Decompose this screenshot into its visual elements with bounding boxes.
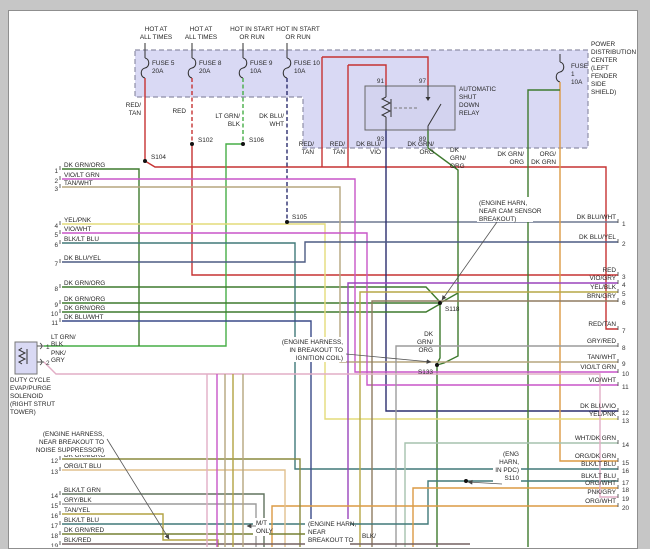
wire-orgltblu-l13 [62, 470, 285, 547]
wire-color-label: BLK [228, 121, 241, 128]
solenoid-pin-label: BLK [51, 341, 64, 348]
wire-color-label: ORG [418, 347, 433, 354]
evap-solenoid-box [15, 342, 37, 374]
left-pin-label: DK BLU/YEL [64, 255, 101, 262]
left-pin-number: 7 [54, 261, 58, 268]
solenoid-pin-label: GRY [51, 357, 65, 364]
right-pin-label: RED [603, 267, 617, 274]
wire-color-label: GRN/ [450, 155, 466, 162]
wire-color-label: TAN [333, 149, 346, 156]
annotation-ignition-coil-breakout: (ENGINE HARNESS, [282, 339, 343, 346]
left-pin-number: 17 [51, 523, 59, 530]
solenoid-caption: EVAP/PURGE [10, 385, 51, 392]
pdc-title: FENDER [591, 73, 618, 80]
wire-brngry-r6 [372, 301, 618, 547]
annotation-s110-in-pdc: (ENG [503, 451, 519, 458]
hot-feed-label: HOT AT [190, 26, 213, 33]
splice-dot-S105 [285, 220, 289, 224]
relay-pin-number: 97 [419, 78, 427, 85]
left-pin-number: 1 [54, 168, 58, 175]
hot-feed-label: OR RUN [239, 34, 265, 41]
right-pin-label: YEL/PNK [589, 411, 617, 418]
hot-feed-label: HOT IN START [276, 26, 320, 33]
solenoid-pin-number: 2 [46, 360, 50, 367]
annotation-bottom-breakout: BREAKOUT TO [308, 537, 353, 544]
relay-pin-number: 91 [377, 78, 385, 85]
right-pin-label: VIO/LT GRN [580, 364, 616, 371]
left-pin-label: BLK/LT BLU [64, 517, 99, 524]
splice-dot-S106 [241, 142, 245, 146]
right-pin-label: TAN/WHT [587, 354, 616, 361]
fuse1-label: FUSE [571, 63, 588, 70]
right-pin-number: 10 [622, 371, 630, 378]
annotation-s110-in-pdc: HARN, [499, 459, 519, 466]
hot-feed-label: OR RUN [285, 34, 311, 41]
left-pin-label: DK GRN/ORG [64, 280, 105, 287]
fuse-label: FUSE 8 [199, 60, 222, 67]
fuse-label: FUSE 9 [250, 60, 273, 67]
hot-feed-label: ALL TIMES [140, 34, 172, 41]
left-pin-number: 12 [51, 458, 59, 465]
left-pin-label: TAN/WHT [64, 180, 93, 187]
left-pin-number: 4 [54, 223, 58, 230]
annotation-s110-in-pdc: S110 [505, 475, 520, 482]
left-pin-number: 16 [51, 513, 59, 520]
wire-color-label: RED/ [330, 141, 345, 148]
wire-color-label: DK BLU/ [259, 113, 284, 120]
right-pin-number: 18 [622, 487, 630, 494]
left-pin-label: DK BLU/WHT [64, 314, 104, 321]
fuse-label: 20A [152, 68, 164, 75]
right-pin-label: DK BLU/WHT [577, 214, 617, 221]
fuse1-label: 1 [571, 71, 575, 78]
annotation-cam-sensor-breakout: (ENGINE HARN, [479, 200, 528, 207]
wire-color-label: DK [450, 147, 460, 154]
left-pin-number: 8 [54, 286, 58, 293]
right-pin-number: 17 [622, 480, 630, 487]
pdc-title: (LEFT [591, 65, 609, 72]
fuse-label: 10A [250, 68, 262, 75]
left-pin-number: 14 [51, 493, 59, 500]
annotation-mt-only: M/T [256, 520, 267, 527]
right-pin-number: 16 [622, 468, 630, 475]
left-pin-number: 18 [51, 533, 59, 540]
left-pin-label: GRY/BLK [64, 497, 92, 504]
solenoid-caption: TOWER) [10, 409, 36, 416]
wire-color-label: ORG [450, 163, 465, 170]
right-pin-label: BLK/LT BLU [581, 473, 616, 480]
wire-color-label: ORG [419, 149, 434, 156]
splice-label: S118 [445, 306, 460, 313]
wire-gryred-r8 [396, 346, 618, 547]
splice-dot-S133 [435, 363, 439, 367]
right-pin-label: BLK/LT BLU [581, 461, 616, 468]
right-pin-label: ORG/WHT [585, 498, 616, 505]
wire-color-label: ORG/ [540, 151, 557, 158]
annotation-cam-sensor-breakout: NEAR CAM SENSOR [479, 208, 542, 215]
right-pin-number: 1 [622, 221, 626, 228]
fuse1-label: 10A [571, 79, 583, 86]
right-pin-number: 7 [622, 328, 626, 335]
solenoid-pin-label: PNK/ [51, 350, 66, 357]
right-pin-label: DK BLU/YEL [579, 234, 616, 241]
left-pin-label: YEL/PNK [64, 217, 92, 224]
left-pin-label: DK GRN/ORG [64, 296, 105, 303]
right-pin-number: 8 [622, 345, 626, 352]
left-pin-number: 15 [51, 503, 59, 510]
right-pin-label: PNK/GRY [587, 489, 616, 496]
right-pin-number: 2 [622, 241, 626, 248]
wire-color-label: TAN [302, 149, 315, 156]
wire-color-label: LT GRN/ [215, 113, 240, 120]
fuse-label: 10A [294, 68, 306, 75]
solenoid-caption: DUTY CYCLE [10, 377, 50, 384]
pdc-title: POWER [591, 41, 616, 48]
left-pin-number: 19 [51, 543, 59, 547]
wire-color-label: TAN [129, 110, 142, 117]
splice-label: S104 [151, 154, 166, 161]
left-pin-label: VIO/LT GRN [64, 172, 100, 179]
left-pin-label: DK GRN/ORG [64, 162, 105, 169]
left-pin-number: 2 [54, 178, 58, 185]
annotation-mt-only: ONLY [256, 528, 274, 535]
left-pin-label: TAN/YEL [64, 507, 91, 514]
fuse-label: FUSE 10 [294, 60, 320, 67]
asd-relay-label: RELAY [459, 110, 480, 117]
right-pin-label: ORG/DK GRN [575, 453, 617, 460]
wire-color-label: DK GRN/ [407, 141, 434, 148]
solenoid-caption: (RIGHT STRUT [10, 401, 55, 408]
right-pin-number: 13 [622, 418, 630, 425]
right-pin-label: YEL/BLK [590, 284, 617, 291]
splice-dot-S110 [464, 479, 468, 483]
left-pin-number: 13 [51, 469, 59, 476]
left-pin-number: 3 [54, 186, 58, 193]
wire-orgwht-r18 [413, 488, 618, 547]
solenoid-pin-label: LT GRN/ [51, 334, 76, 341]
right-pin-number: 12 [622, 410, 630, 417]
left-pin-number: 11 [51, 320, 58, 327]
wire-color-label: BLK/ [362, 533, 376, 540]
annotation-bottom-breakout: NEAR [308, 529, 326, 536]
right-pin-label: VIO/WHT [589, 377, 616, 384]
annotation-noise-suppressor-breakout: (ENGINE HARNESS, [43, 431, 104, 438]
wire-color-label: DK GRN/ [497, 151, 524, 158]
annotation-bottom-breakout: (ENGINE HARN, [308, 521, 357, 528]
asd-relay-label: SHUT [459, 94, 476, 101]
right-pin-label: VIO/GRY [589, 275, 616, 282]
left-pin-label: DK GRN/RED [64, 527, 105, 534]
right-pin-label: DK BLU/VIO [580, 403, 616, 410]
wire-dkgrnorg-l8 [62, 287, 440, 302]
annotation-noise-suppressor-breakout: NOISE SUPPRESSOR) [36, 447, 104, 454]
left-pin-label: BLK/LT BLU [64, 236, 99, 243]
annotation-cam-sensor-breakout: BREAKOUT) [479, 216, 516, 223]
right-pin-label: BRN/GRY [587, 293, 617, 300]
pdc-title: SHIELD) [591, 89, 616, 96]
left-pin-number: 10 [51, 311, 59, 318]
left-pin-number: 9 [54, 302, 58, 309]
wire-color-label: RED/ [299, 141, 314, 148]
annotation-ignition-coil-breakout: IGNITION COIL) [296, 355, 343, 362]
pdc-title: DISTRIBUTION [591, 49, 636, 56]
splice-dot-S102 [190, 142, 194, 146]
splice-label: S105 [292, 214, 307, 221]
annotation-arrow [442, 222, 497, 300]
right-pin-number: 19 [622, 496, 630, 503]
splice-label: S133 [418, 369, 433, 376]
wire-color-label: VIO [370, 149, 381, 156]
left-pin-number: 6 [54, 242, 58, 249]
wire-dkgrnorg-s118-s133 [437, 304, 440, 364]
left-pin-label: ORG/LT BLU [64, 463, 102, 470]
solenoid-caption: SOLENOID [10, 393, 43, 400]
wire-color-label: WHT [269, 121, 284, 128]
wire-dkgrnorg-l10 [62, 304, 440, 312]
wire-color-label: DK [424, 331, 434, 338]
splice-label: S102 [198, 137, 213, 144]
right-pin-number: 15 [622, 460, 630, 467]
solenoid-pin-number: 1 [46, 344, 50, 351]
right-pin-number: 11 [622, 384, 629, 391]
right-pin-label: RED/TAN [588, 321, 616, 328]
splice-dot-S104 [143, 159, 147, 163]
right-pin-label: GRY/RED [587, 338, 616, 345]
splice-label: S106 [249, 137, 264, 144]
right-pin-number: 4 [622, 282, 626, 289]
right-pin-number: 3 [622, 274, 626, 281]
right-pin-number: 9 [622, 361, 626, 368]
right-pin-label: ORG/WHT [585, 480, 616, 487]
fuse-label: 20A [199, 68, 211, 75]
splice-dot-S118 [438, 301, 442, 305]
left-pin-label: DK GRN/ORG [64, 305, 105, 312]
right-pin-number: 20 [622, 505, 630, 512]
right-pin-number: 14 [622, 442, 630, 449]
fuse-label: FUSE 5 [152, 60, 175, 67]
hot-feed-label: ALL TIMES [185, 34, 217, 41]
wire-color-label: DK GRN [531, 159, 556, 166]
left-pin-label: BLK/LT GRN [64, 487, 101, 494]
hot-feed-label: HOT IN START [230, 26, 274, 33]
left-pin-number: 5 [54, 232, 58, 239]
asd-relay-label: DOWN [459, 102, 480, 109]
wire-color-label: ORG [509, 159, 524, 166]
pdc-title: SIDE [591, 81, 606, 88]
annotation-ignition-coil-breakout: IN BREAKOUT TO [289, 347, 343, 354]
right-pin-number: 6 [622, 300, 626, 307]
wire-color-label: RED [173, 108, 187, 115]
hot-feed-label: HOT AT [145, 26, 168, 33]
annotation-s110-in-pdc: IN PDC) [495, 467, 519, 474]
wire-viogry-r4 [348, 283, 618, 547]
annotation-noise-suppressor-breakout: NEAR BREAKOUT TO [39, 439, 104, 446]
wiring-diagram: POWERDISTRIBUTIONCENTER(LEFTFENDERSIDESH… [0, 0, 650, 547]
right-pin-number: 5 [622, 291, 626, 298]
wire-color-label: RED/ [126, 102, 141, 109]
wire-color-label: DK BLU/ [356, 141, 381, 148]
wire-color-label: GRN/ [417, 339, 433, 346]
pdc-title: CENTER [591, 57, 618, 64]
right-pin-label: WHT/DK GRN [575, 435, 617, 442]
left-pin-label: BLK/RED [64, 537, 92, 544]
annotation-arrow [346, 354, 431, 362]
asd-relay-label: AUTOMATIC [459, 86, 496, 93]
left-pin-label: VIO/WHT [64, 226, 91, 233]
